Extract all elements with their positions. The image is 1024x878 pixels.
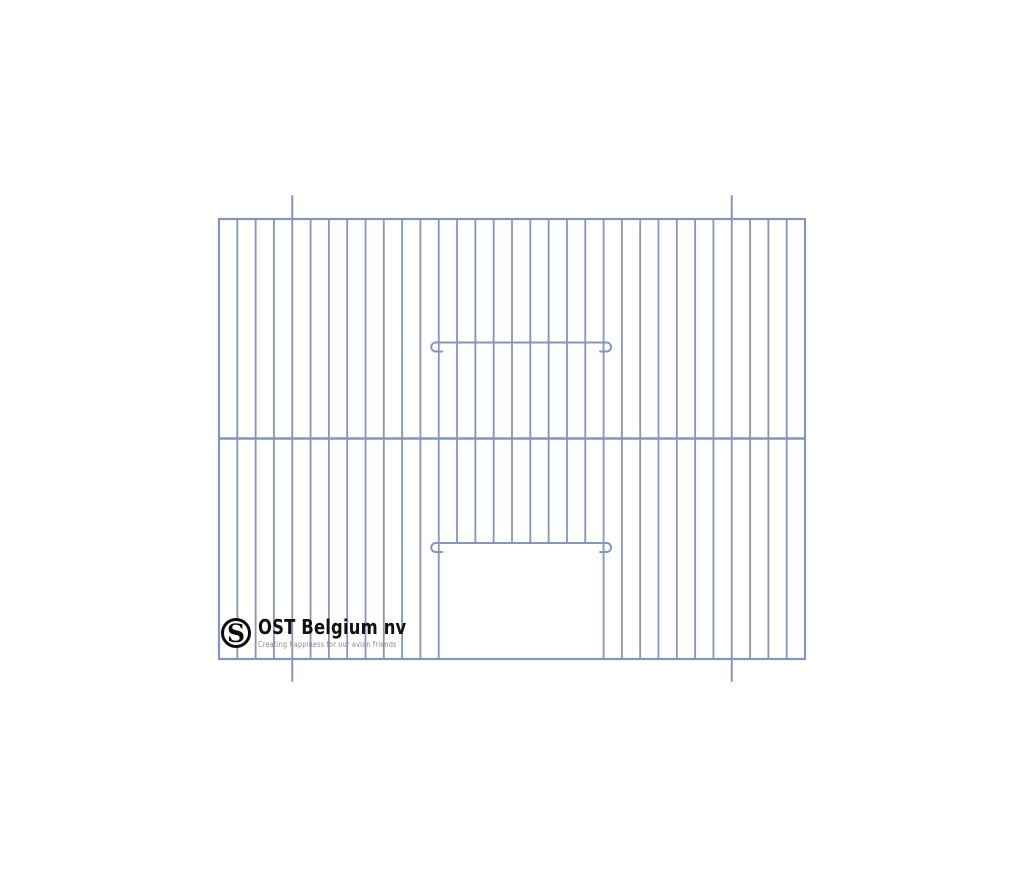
- logo-monogram-icon: S: [221, 618, 251, 648]
- cage-front-drawing: [0, 0, 1024, 878]
- logo-monogram-letter: S: [227, 621, 245, 646]
- product-image-canvas: S OST Belgium nv Creating happiness for …: [0, 0, 1024, 878]
- logo-text-block: OST Belgium nv Creating happiness for ou…: [258, 617, 406, 649]
- brand-tagline: Creating happiness for our avian friends: [258, 640, 406, 649]
- brand-name: OST Belgium nv: [258, 617, 406, 638]
- brand-logo: S OST Belgium nv Creating happiness for …: [221, 616, 439, 650]
